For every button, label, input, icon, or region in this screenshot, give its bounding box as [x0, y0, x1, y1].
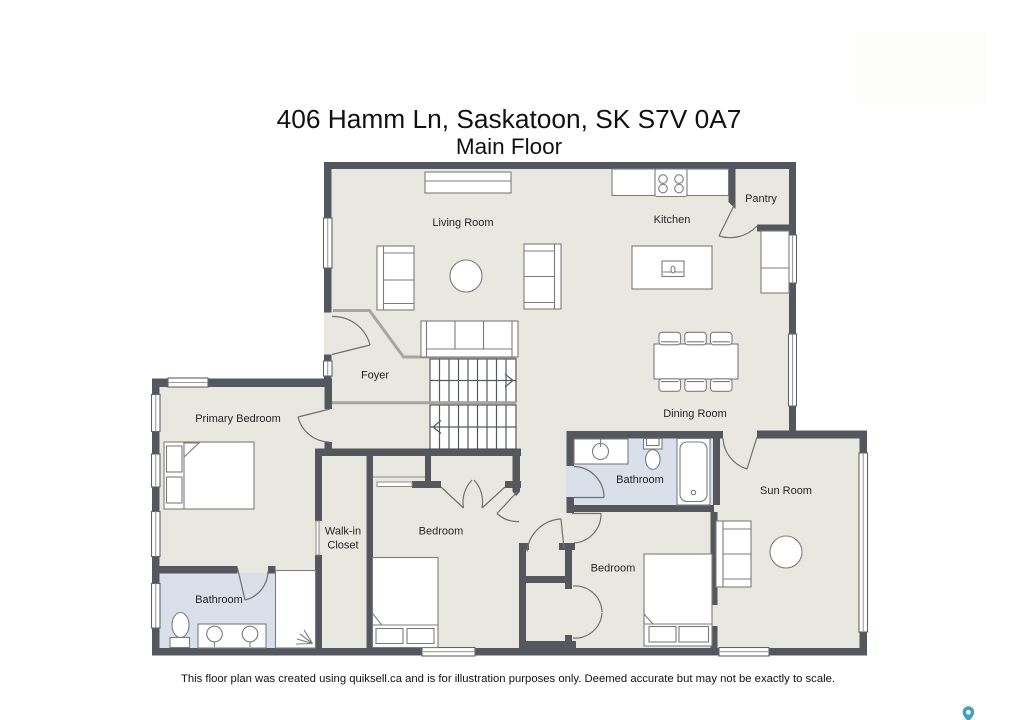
svg-text:Pantry: Pantry — [745, 193, 777, 205]
svg-text:Primary Bedroom: Primary Bedroom — [195, 413, 281, 425]
svg-text:Kitchen: Kitchen — [654, 214, 691, 226]
svg-text:Bedroom: Bedroom — [591, 563, 636, 575]
svg-text:Bathroom: Bathroom — [195, 594, 243, 606]
svg-text:Walk-in: Walk-in — [325, 526, 361, 538]
svg-text:Closet: Closet — [327, 540, 358, 552]
svg-text:Bedroom: Bedroom — [419, 526, 464, 538]
svg-text:Living Room: Living Room — [432, 217, 493, 229]
svg-text:Foyer: Foyer — [361, 370, 389, 382]
svg-text:Sun Room: Sun Room — [760, 485, 812, 497]
svg-text:Bathroom: Bathroom — [616, 474, 664, 486]
svg-text:406 Hamm Ln, Saskatoon, SK S7V: 406 Hamm Ln, Saskatoon, SK S7V 0A7 — [277, 104, 742, 134]
svg-text:Dining Room: Dining Room — [663, 408, 727, 420]
svg-text:Main Floor: Main Floor — [456, 134, 563, 159]
svg-text:This floor plan was created us: This floor plan was created using quikse… — [181, 673, 835, 685]
